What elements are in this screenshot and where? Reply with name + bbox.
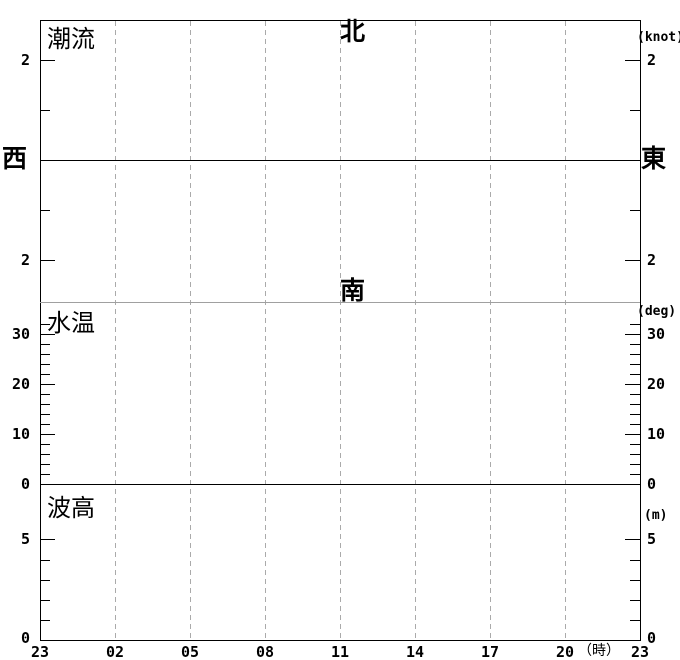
y-tick-label: 5	[21, 532, 30, 547]
x-tick-label: 05	[170, 645, 210, 660]
y-tick-label: 0	[647, 477, 656, 492]
x-tick-label: 14	[395, 645, 435, 660]
direction-north-label: 北	[340, 19, 365, 44]
direction-west-label: 西	[2, 146, 27, 171]
x-tick-label: 11	[320, 645, 360, 660]
current-panel-title: 潮流	[47, 27, 95, 52]
x-tick-label: 08	[245, 645, 285, 660]
temperature-panel-title: 水温	[47, 311, 95, 336]
y-tick-label: 30	[647, 327, 665, 342]
y-tick-label: 0	[21, 477, 30, 492]
x-axis-unit-label: （時）	[578, 644, 620, 659]
temperature-unit-label: (deg)	[637, 305, 676, 318]
y-tick-label: 2	[647, 253, 656, 268]
x-tick-label: 23	[20, 645, 60, 660]
y-tick-label: 10	[647, 427, 665, 442]
y-tick-label: 20	[647, 377, 665, 392]
wave-unit-label: (m)	[644, 509, 667, 522]
current-unit-label: (knot)	[637, 31, 680, 44]
y-tick-label: 2	[21, 53, 30, 68]
x-tick-label: 02	[95, 645, 135, 660]
x-tick-label: 17	[470, 645, 510, 660]
y-tick-label: 0	[21, 631, 30, 646]
y-tick-label: 20	[12, 377, 30, 392]
y-tick-label: 30	[12, 327, 30, 342]
y-tick-label: 10	[12, 427, 30, 442]
y-tick-label: 5	[647, 532, 656, 547]
x-tick-label: 23	[620, 645, 660, 660]
wave-panel-title: 波高	[47, 496, 95, 521]
y-tick-label: 2	[647, 53, 656, 68]
direction-east-label: 東	[641, 146, 666, 171]
direction-south-label: 南	[340, 278, 365, 303]
y-tick-label: 2	[21, 253, 30, 268]
chart-frame-layer	[0, 0, 680, 660]
marine-conditions-chart: 潮流 (knot) 北 南 西 東 2 2 2 2 水温 (deg) 30 20…	[0, 0, 680, 660]
